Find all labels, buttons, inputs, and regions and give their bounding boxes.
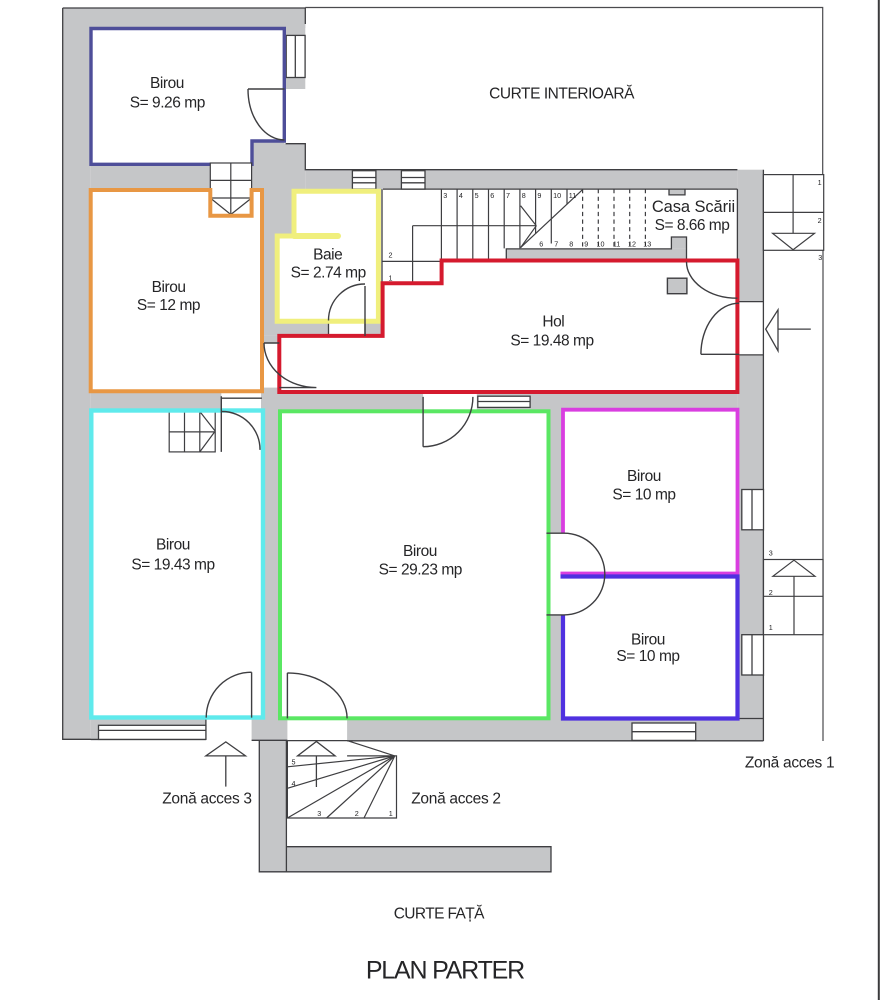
svg-text:3: 3 bbox=[443, 191, 447, 200]
svg-text:2: 2 bbox=[389, 251, 393, 260]
svg-text:5: 5 bbox=[292, 758, 296, 767]
svg-text:3: 3 bbox=[317, 809, 321, 818]
svg-text:7: 7 bbox=[506, 191, 510, 200]
svg-text:7: 7 bbox=[554, 240, 558, 249]
svg-text:CURTE INTERIOARĂ: CURTE INTERIOARĂ bbox=[489, 85, 635, 102]
svg-text:Zonă acces 3: Zonă acces 3 bbox=[162, 791, 251, 808]
svg-text:8: 8 bbox=[569, 240, 573, 249]
svg-text:3: 3 bbox=[818, 253, 822, 262]
svg-text:1: 1 bbox=[769, 623, 773, 632]
svg-text:2: 2 bbox=[769, 588, 773, 597]
svg-text:Hol: Hol bbox=[542, 313, 564, 330]
svg-text:6: 6 bbox=[539, 240, 543, 249]
svg-text:4: 4 bbox=[459, 191, 463, 200]
svg-text:CURTE FAȚĂ: CURTE FAȚĂ bbox=[394, 906, 485, 923]
svg-text:S= 19.48 mp: S= 19.48 mp bbox=[510, 333, 593, 350]
svg-text:Zonă acces 2: Zonă acces 2 bbox=[411, 791, 500, 808]
svg-text:S= 12 mp: S= 12 mp bbox=[137, 297, 200, 314]
svg-text:8: 8 bbox=[522, 191, 526, 200]
svg-text:S= 19.43 mp: S= 19.43 mp bbox=[131, 556, 214, 573]
svg-text:Casa Scării: Casa Scării bbox=[652, 198, 735, 216]
svg-text:1: 1 bbox=[389, 274, 393, 283]
svg-text:S= 10 mp: S= 10 mp bbox=[612, 487, 675, 504]
svg-text:S= 10 mp: S= 10 mp bbox=[616, 648, 679, 665]
svg-text:13: 13 bbox=[643, 240, 651, 249]
svg-text:Birou: Birou bbox=[403, 543, 437, 560]
svg-text:Birou: Birou bbox=[150, 75, 184, 92]
svg-text:S= 8.66 mp: S= 8.66 mp bbox=[655, 217, 730, 234]
svg-text:S= 9.26 mp: S= 9.26 mp bbox=[130, 94, 205, 111]
svg-text:9: 9 bbox=[537, 191, 541, 200]
svg-text:1: 1 bbox=[389, 809, 393, 818]
svg-text:11: 11 bbox=[613, 240, 620, 249]
svg-text:4: 4 bbox=[292, 779, 296, 788]
svg-text:S= 29.23 mp: S= 29.23 mp bbox=[379, 562, 462, 579]
svg-text:5: 5 bbox=[475, 191, 479, 200]
svg-text:Zonă acces 1: Zonă acces 1 bbox=[745, 755, 834, 772]
svg-text:Birou: Birou bbox=[152, 279, 186, 296]
svg-text:10: 10 bbox=[597, 240, 605, 249]
svg-text:12: 12 bbox=[628, 240, 636, 249]
svg-text:PLAN PARTER: PLAN PARTER bbox=[366, 957, 524, 985]
svg-text:Birou: Birou bbox=[631, 632, 665, 649]
svg-text:Birou: Birou bbox=[156, 537, 190, 554]
svg-text:2: 2 bbox=[355, 809, 359, 818]
svg-text:1: 1 bbox=[818, 178, 822, 187]
svg-text:10: 10 bbox=[553, 191, 561, 200]
svg-text:Birou: Birou bbox=[627, 468, 661, 485]
svg-text:9: 9 bbox=[584, 240, 588, 249]
svg-text:6: 6 bbox=[490, 191, 494, 200]
svg-text:S= 2.74 mp: S= 2.74 mp bbox=[291, 265, 366, 282]
svg-text:11: 11 bbox=[569, 191, 576, 200]
svg-text:3: 3 bbox=[769, 549, 773, 558]
svg-text:Baie: Baie bbox=[313, 247, 342, 264]
svg-text:2: 2 bbox=[818, 216, 822, 225]
